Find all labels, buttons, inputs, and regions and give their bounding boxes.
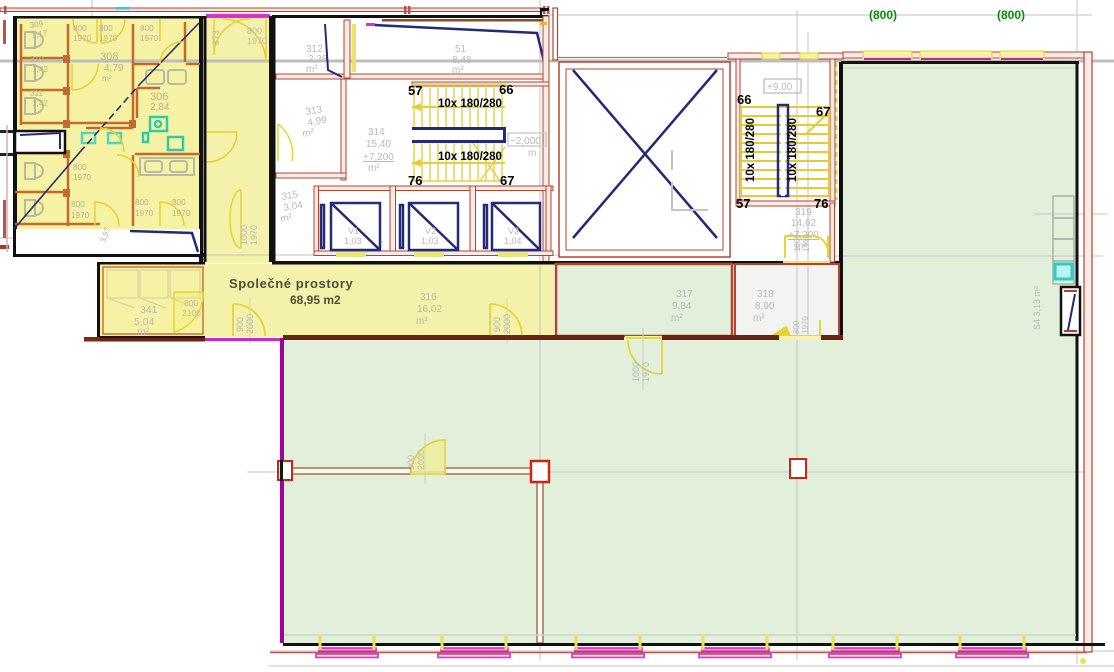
- svg-text:2100: 2100: [182, 308, 201, 318]
- svg-text:1,42: 1,42: [32, 65, 48, 74]
- svg-text:+9,00: +9,00: [767, 82, 793, 93]
- svg-text:1970: 1970: [802, 234, 811, 252]
- svg-text:57: 57: [408, 83, 422, 98]
- svg-text:1970: 1970: [247, 36, 267, 46]
- svg-text:V1: V1: [348, 226, 359, 236]
- svg-text:1970: 1970: [99, 34, 118, 43]
- svg-text:318: 318: [757, 289, 774, 300]
- svg-text:9,84: 9,84: [672, 301, 692, 312]
- svg-text:m²: m²: [416, 316, 428, 327]
- svg-text:319: 319: [795, 207, 812, 218]
- svg-text:67: 67: [816, 104, 830, 119]
- svg-text:4,79: 4,79: [104, 63, 124, 74]
- svg-text:51: 51: [455, 44, 467, 55]
- svg-text:76: 76: [814, 196, 828, 211]
- svg-text:1970: 1970: [135, 209, 154, 218]
- svg-text:800: 800: [184, 298, 198, 308]
- svg-text:m²: m²: [452, 65, 464, 76]
- svg-text:V2: V2: [425, 226, 436, 236]
- svg-text:57: 57: [736, 196, 750, 211]
- svg-text:900: 900: [492, 317, 502, 332]
- svg-text:10x 180/280: 10x 180/280: [745, 118, 757, 182]
- svg-text:800: 800: [247, 26, 262, 36]
- svg-text:1,04: 1,04: [504, 236, 522, 246]
- svg-text:800: 800: [140, 24, 154, 33]
- svg-text:S4 3,13 m²: S4 3,13 m²: [1032, 286, 1042, 330]
- svg-text:(800): (800): [997, 8, 1025, 22]
- svg-text:1970: 1970: [172, 209, 191, 218]
- svg-text:66: 66: [737, 92, 751, 107]
- svg-text:1970: 1970: [249, 225, 259, 245]
- svg-text:1970: 1970: [140, 34, 159, 43]
- svg-text:311: 311: [30, 89, 43, 98]
- svg-text:m²: m²: [137, 326, 150, 338]
- svg-text:15,40: 15,40: [366, 139, 391, 150]
- svg-text:m²: m²: [753, 313, 765, 324]
- svg-text:2,84: 2,84: [150, 102, 170, 113]
- svg-text:10x 180/280: 10x 180/280: [787, 118, 799, 182]
- svg-text:1000: 1000: [239, 225, 249, 245]
- svg-text:314: 314: [368, 127, 385, 138]
- svg-text:341: 341: [140, 304, 158, 316]
- svg-text:Společné prostory: Společné prostory: [229, 276, 354, 291]
- svg-text:1970: 1970: [641, 362, 651, 382]
- svg-text:1,42: 1,42: [32, 99, 48, 108]
- svg-text:900: 900: [235, 317, 245, 332]
- svg-text:−2,000: −2,000: [510, 136, 541, 147]
- svg-text:10x 180/280: 10x 180/280: [438, 151, 502, 163]
- svg-text:800: 800: [73, 24, 87, 33]
- svg-text:308: 308: [100, 51, 118, 63]
- svg-text:m²: m²: [368, 163, 380, 174]
- svg-text:V3: V3: [508, 226, 519, 236]
- svg-text:14,62: 14,62: [791, 218, 816, 229]
- svg-text:800: 800: [172, 198, 186, 207]
- svg-text:2000: 2000: [502, 314, 512, 334]
- svg-text:317: 317: [676, 289, 693, 300]
- svg-text:873: 873: [211, 30, 221, 45]
- svg-text:800: 800: [73, 163, 87, 172]
- svg-text:m²: m²: [102, 74, 112, 83]
- svg-text:2000: 2000: [245, 314, 255, 334]
- svg-text:800: 800: [71, 200, 85, 209]
- svg-text:800: 800: [792, 320, 801, 334]
- svg-text:1000: 1000: [631, 362, 641, 382]
- svg-text:316: 316: [420, 292, 437, 303]
- svg-text:16,02: 16,02: [417, 304, 442, 315]
- svg-text:310: 310: [30, 55, 44, 64]
- svg-text:m²: m²: [671, 313, 683, 324]
- svg-text:1000: 1000: [793, 234, 802, 252]
- svg-text:m: m: [528, 148, 536, 159]
- svg-text:1970: 1970: [73, 173, 92, 182]
- svg-text:1970: 1970: [73, 34, 92, 43]
- svg-text:1,03: 1,03: [421, 236, 439, 246]
- svg-text:66: 66: [499, 82, 513, 97]
- svg-text:2000: 2000: [416, 450, 426, 470]
- svg-text:10x 180/280: 10x 180/280: [438, 98, 502, 110]
- svg-text:(800): (800): [869, 8, 897, 22]
- svg-text:1970: 1970: [801, 316, 810, 334]
- svg-text:m²: m²: [306, 64, 318, 75]
- svg-text:800: 800: [99, 24, 113, 33]
- svg-text:8,90: 8,90: [755, 301, 775, 312]
- svg-text:68,95 m2: 68,95 m2: [290, 293, 341, 307]
- svg-text:800: 800: [135, 198, 149, 207]
- svg-text:900: 900: [406, 455, 416, 470]
- svg-text:+7,200: +7,200: [363, 152, 394, 163]
- svg-text:1970: 1970: [71, 211, 90, 220]
- svg-text:1,03: 1,03: [344, 236, 362, 246]
